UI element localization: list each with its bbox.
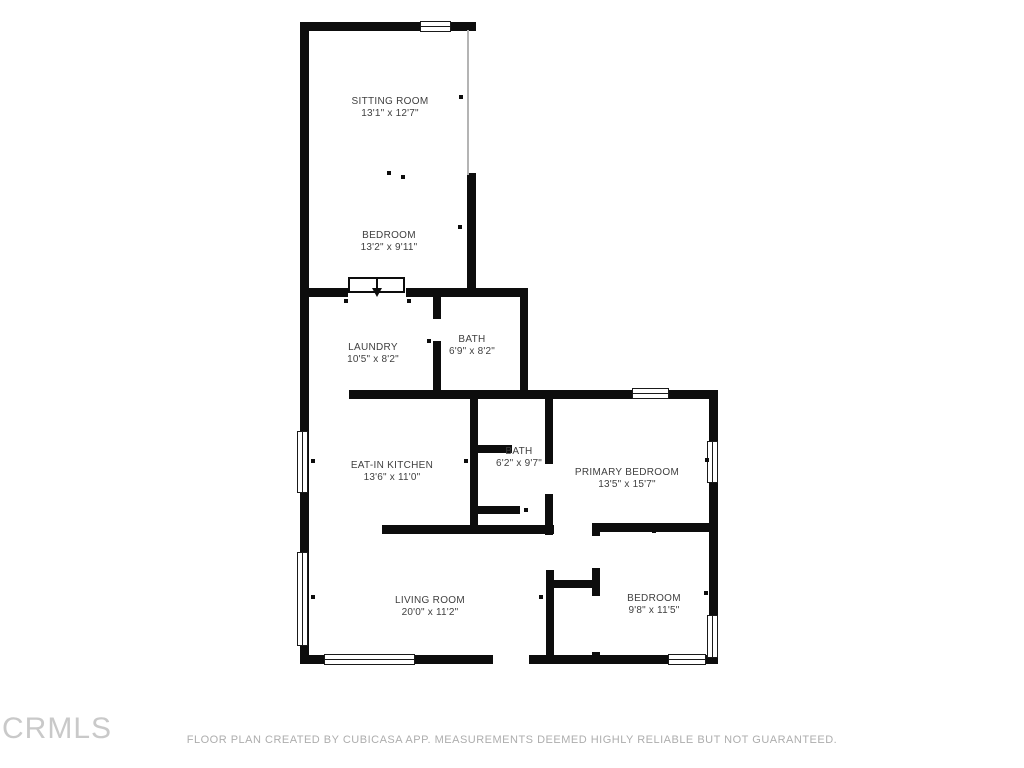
- room-label-bath-upper: BATH 6'9" x 8'2": [449, 334, 495, 358]
- wall-segment: [467, 173, 476, 296]
- floor-plan: SITTING ROOM 13'1" x 12'7" BEDROOM 13'2"…: [0, 0, 1024, 768]
- wall-tick: [304, 95, 308, 99]
- room-name: LAUNDRY: [347, 342, 399, 354]
- window-pane-line: [325, 659, 414, 660]
- wall-tick: [464, 459, 468, 463]
- room-label-bedroom-lower: BEDROOM 9'8" x 11'5": [627, 593, 681, 617]
- room-label-primary-bedroom: PRIMARY BEDROOM 13'5" x 15'7": [575, 467, 679, 491]
- room-name: PRIMARY BEDROOM: [575, 467, 679, 479]
- wall-tick: [571, 581, 575, 585]
- wall-tick: [387, 171, 391, 175]
- wall-tick: [459, 95, 463, 99]
- room-dimensions: 13'6" x 11'0": [351, 472, 433, 484]
- window-symbol: [668, 654, 706, 665]
- room-dimensions: 13'2" x 9'11": [361, 242, 418, 254]
- door-swing-arrow-icon: [372, 288, 382, 297]
- window-pane-line: [633, 393, 668, 394]
- wall-segment: [406, 288, 528, 297]
- wall-segment: [433, 297, 441, 319]
- room-name: BEDROOM: [361, 230, 418, 242]
- wall-segment: [520, 288, 528, 398]
- room-name: BEDROOM: [627, 593, 681, 605]
- disclaimer-text: FLOOR PLAN CREATED BY CUBICASA APP. MEAS…: [0, 734, 1024, 746]
- window-symbol: [420, 21, 451, 32]
- wall-tick: [304, 225, 308, 229]
- room-name: BATH: [496, 446, 542, 458]
- wall-tick: [427, 339, 431, 343]
- room-label-laundry: LAUNDRY 10'5" x 8'2": [347, 342, 399, 366]
- wall-tick: [704, 591, 708, 595]
- window-pane-line: [712, 442, 713, 482]
- window-symbol: [632, 388, 669, 399]
- wall-tick: [705, 458, 709, 462]
- room-name: SITTING ROOM: [352, 96, 429, 108]
- room-label-sitting-room: SITTING ROOM 13'1" x 12'7": [352, 96, 429, 120]
- wall-segment: [349, 390, 633, 399]
- room-dimensions: 10'5" x 8'2": [347, 354, 399, 366]
- room-label-eat-in-kitchen: EAT-IN KITCHEN 13'6" x 11'0": [351, 460, 433, 484]
- room-dimensions: 20'0" x 11'2": [395, 607, 465, 619]
- window-pane-line: [712, 616, 713, 657]
- wall-tick: [525, 395, 529, 399]
- wall-segment: [529, 655, 671, 664]
- wall-tick: [524, 508, 528, 512]
- wall-tick: [311, 595, 315, 599]
- wall-tick: [539, 595, 543, 599]
- room-dimensions: 9'8" x 11'5": [627, 605, 681, 617]
- window-symbol: [707, 441, 718, 483]
- wall-segment: [300, 22, 309, 296]
- wall-tick: [651, 658, 655, 662]
- wall-segment: [592, 523, 600, 536]
- window-symbol: [324, 654, 415, 665]
- room-dimensions: 13'5" x 15'7": [575, 479, 679, 491]
- wall-tick: [652, 529, 656, 533]
- room-name: EAT-IN KITCHEN: [351, 460, 433, 472]
- wall-tick: [594, 591, 598, 595]
- wall-tick: [407, 299, 411, 303]
- room-label-bedroom-upper: BEDROOM 13'2" x 9'11": [361, 230, 418, 254]
- wall-segment: [433, 341, 441, 391]
- wall-tick: [344, 299, 348, 303]
- window-pane-line: [669, 659, 705, 660]
- window-pane-line: [302, 553, 303, 645]
- window-symbol: [707, 615, 718, 658]
- wall-segment: [382, 525, 554, 534]
- room-label-bath-middle: BATH 6'2" x 9'7": [496, 446, 542, 470]
- wall-tick: [426, 658, 430, 662]
- room-name: LIVING ROOM: [395, 595, 465, 607]
- room-dimensions: 6'2" x 9'7": [496, 458, 542, 470]
- window-pane-line: [421, 26, 450, 27]
- room-dimensions: 13'1" x 12'7": [352, 108, 429, 120]
- wall-segment: [475, 506, 520, 514]
- wall-segment: [545, 398, 553, 464]
- wall-tick: [458, 225, 462, 229]
- window-symbol: [297, 431, 308, 493]
- wall-tick: [401, 175, 405, 179]
- room-name: BATH: [449, 334, 495, 346]
- window-symbol: [297, 552, 308, 646]
- wall-tick: [573, 395, 577, 399]
- wall-tick: [384, 526, 388, 530]
- door-symbol: [348, 277, 405, 293]
- partial-wall-line: [467, 30, 469, 175]
- wall-segment: [300, 655, 326, 664]
- wall-tick: [477, 395, 481, 399]
- wall-tick: [311, 459, 315, 463]
- room-label-living-room: LIVING ROOM 20'0" x 11'2": [395, 595, 465, 619]
- room-dimensions: 6'9" x 8'2": [449, 346, 495, 358]
- window-pane-line: [302, 432, 303, 492]
